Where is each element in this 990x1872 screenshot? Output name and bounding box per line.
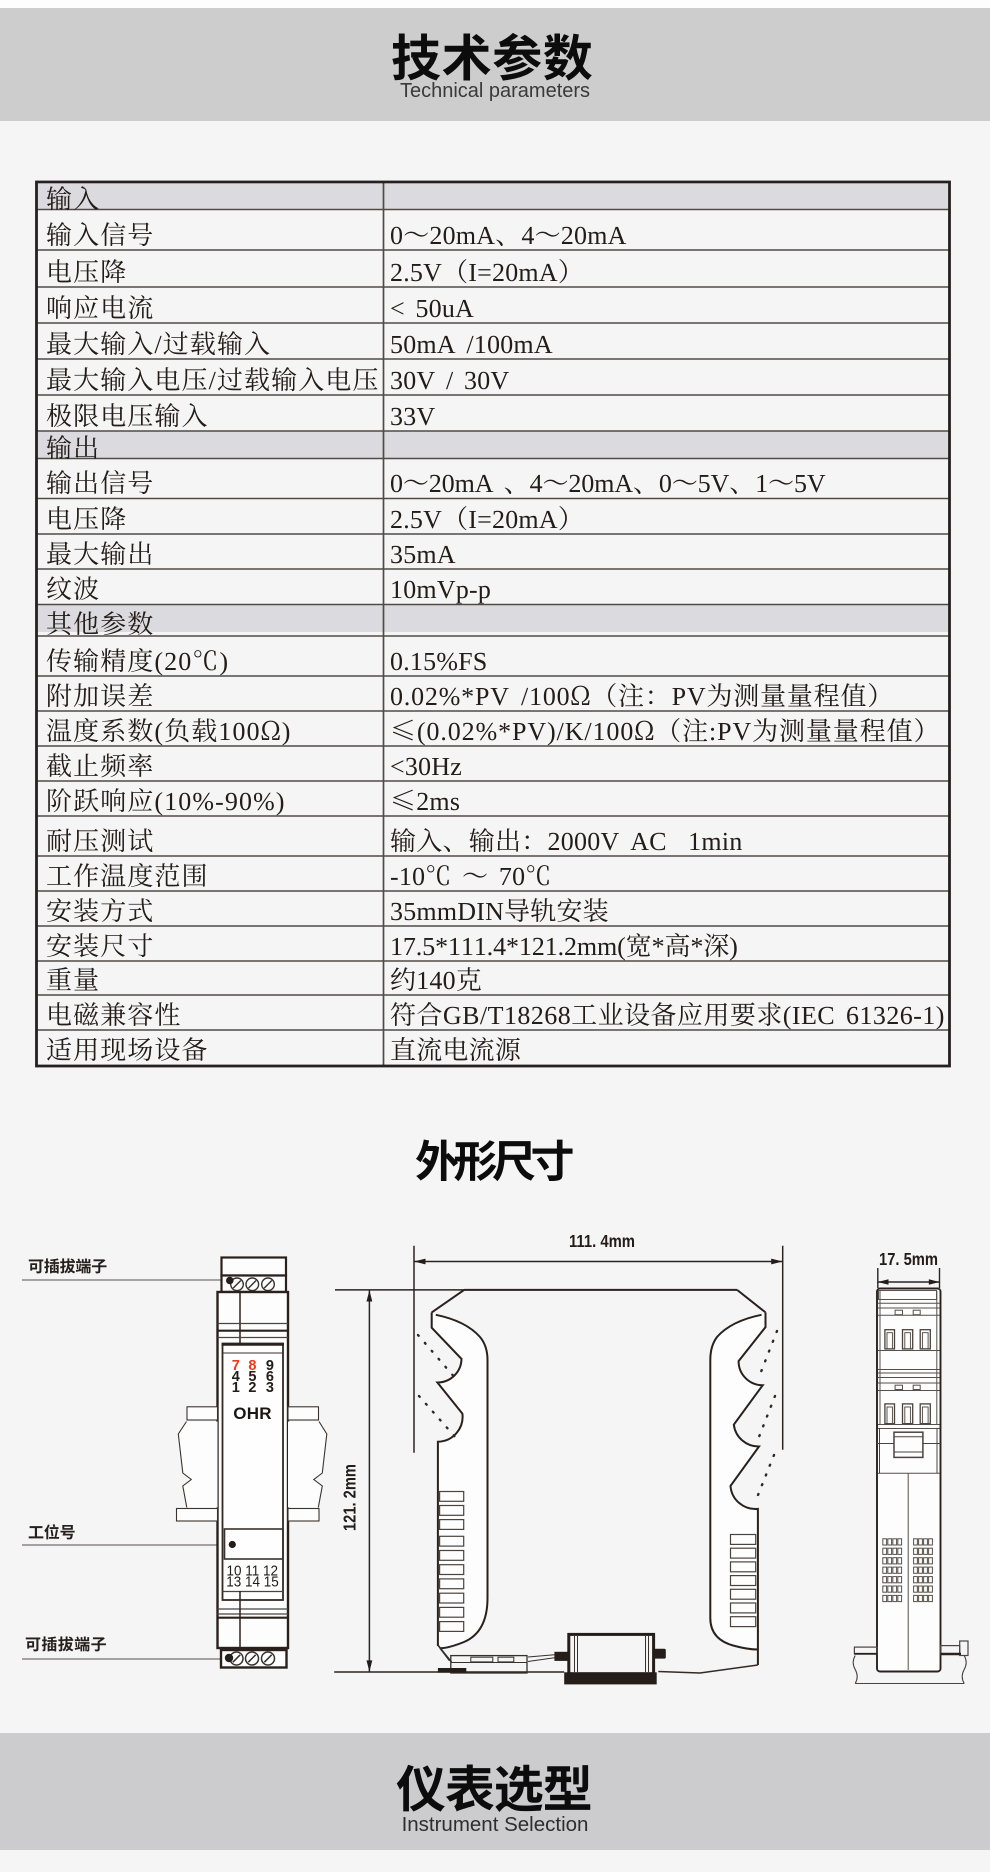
svg-text:111. 4mm: 111. 4mm: [569, 1231, 635, 1251]
svg-text:2: 2: [248, 1380, 256, 1396]
svg-text:1: 1: [232, 1380, 240, 1396]
svg-text:17. 5mm: 17. 5mm: [879, 1249, 938, 1269]
svg-text:OHR: OHR: [233, 1404, 271, 1423]
svg-text:3: 3: [266, 1380, 274, 1396]
svg-text:13 14 15: 13 14 15: [226, 1574, 278, 1591]
svg-text:121. 2mm: 121. 2mm: [339, 1464, 359, 1531]
